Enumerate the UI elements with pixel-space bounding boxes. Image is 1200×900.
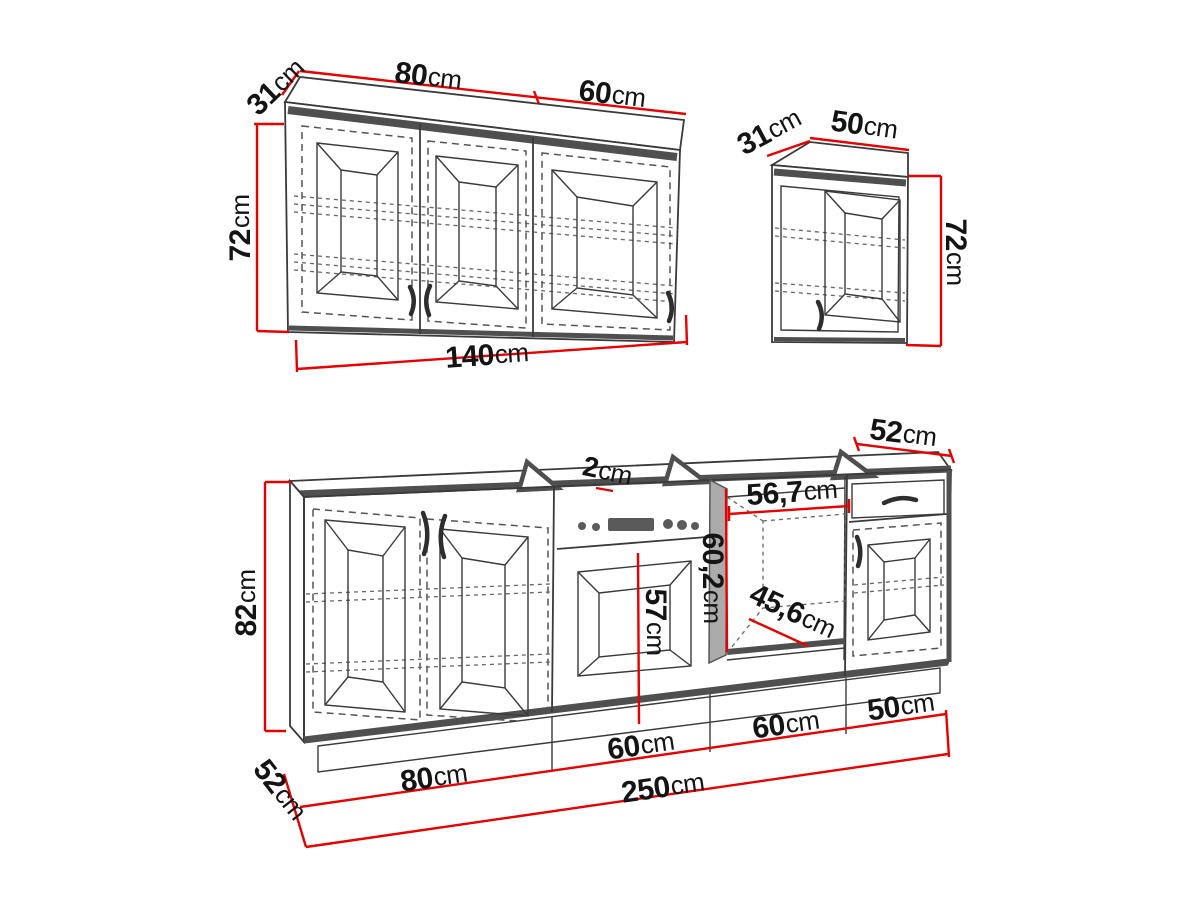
oven-knob bbox=[663, 519, 673, 529]
label-total-width: 250cm bbox=[619, 765, 706, 809]
label-niche-height: 60,2cm bbox=[696, 532, 729, 623]
label-wl-height: 72cm bbox=[224, 194, 257, 261]
label-niche-floor-depth: 45,6cm bbox=[744, 577, 840, 645]
kitchen-dimension-diagram: 31cm 80cm 60cm 72cm 140cm 31cm 50cm 72cm… bbox=[0, 0, 1200, 900]
wall-right-bottom-rail bbox=[774, 339, 905, 340]
dimline-oven-57 bbox=[638, 553, 639, 724]
diagram-svg: 31cm 80cm 60cm 72cm 140cm 31cm 50cm 72cm… bbox=[0, 0, 1200, 900]
base-doors-80 bbox=[306, 509, 550, 723]
wall-cabinet-left bbox=[285, 77, 684, 342]
oven-door-panel bbox=[578, 561, 691, 676]
label-wr-width: 50cm bbox=[829, 104, 900, 146]
base-divider-80-60 bbox=[552, 487, 554, 712]
dimtick-worktop-2 bbox=[596, 488, 613, 491]
wall-cabinet-right bbox=[772, 142, 908, 343]
label-width-1: 80cm bbox=[398, 756, 469, 798]
oven-display bbox=[608, 518, 654, 531]
oven-door-top-line bbox=[557, 537, 707, 549]
label-niche-width: 56,7cm bbox=[745, 473, 838, 512]
base-door1-handle bbox=[423, 513, 427, 554]
label-base-height: 82cm bbox=[230, 569, 263, 636]
label-wr-height: 72cm bbox=[939, 218, 972, 285]
drawer-unit-door-handle bbox=[857, 537, 860, 566]
oven-unit bbox=[557, 518, 707, 676]
label-oven-door-height: 57cm bbox=[639, 588, 672, 655]
oven-knob bbox=[592, 523, 600, 531]
oven-knob bbox=[691, 522, 699, 530]
oven-knob bbox=[677, 520, 687, 530]
label-wl-total-width: 140cm bbox=[444, 336, 529, 375]
base-run bbox=[290, 452, 951, 772]
label-base-depth: 52cm bbox=[247, 753, 314, 826]
drawer-unit bbox=[849, 480, 947, 656]
oven-knob bbox=[578, 522, 586, 530]
drawer-handle bbox=[884, 498, 916, 503]
base-left-side bbox=[290, 481, 304, 742]
base-door2-handle bbox=[441, 516, 445, 557]
